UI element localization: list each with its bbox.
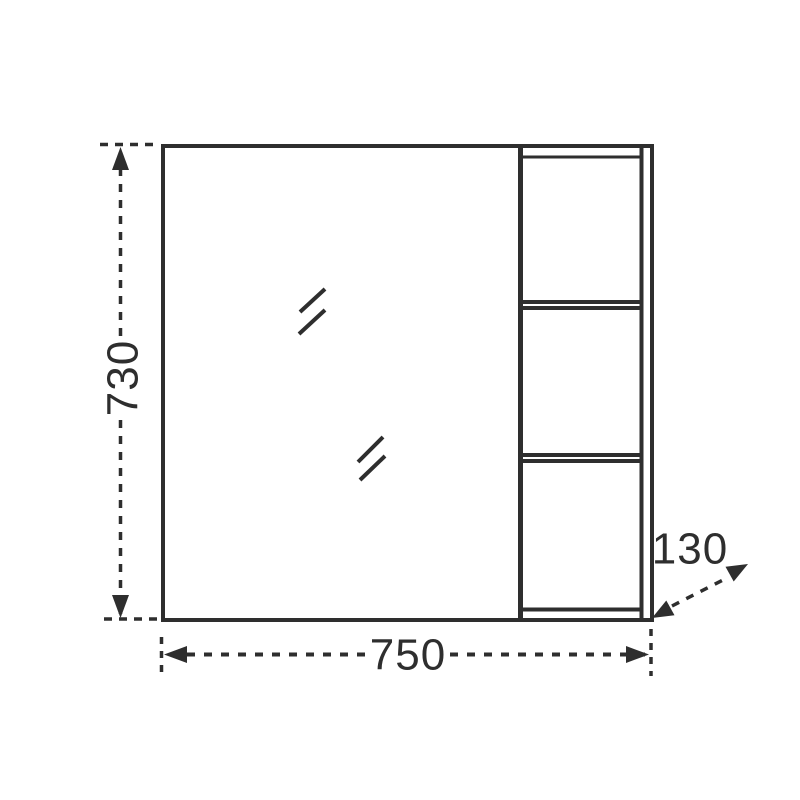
arrow-up-icon bbox=[112, 147, 129, 170]
width-dimension: 750 bbox=[162, 629, 652, 679]
mirror-glass-icon-1 bbox=[299, 289, 325, 334]
width-dimension-label: 750 bbox=[370, 630, 446, 679]
arrow-down-icon bbox=[112, 595, 129, 618]
depth-dimension-label: 130 bbox=[652, 524, 728, 573]
depth-dimension-line bbox=[672, 578, 727, 606]
height-dimension-label: 730 bbox=[98, 340, 147, 416]
arrow-up-right-icon bbox=[726, 564, 749, 582]
mirror-glass-icon-2 bbox=[358, 437, 385, 480]
arrow-down-left-icon bbox=[652, 601, 675, 619]
height-dimension: 730 bbox=[98, 145, 159, 620]
diagram-canvas: 730 750 130 bbox=[0, 0, 800, 800]
cabinet-body bbox=[163, 146, 652, 620]
cabinet-outline bbox=[163, 146, 652, 620]
cabinet-technical-drawing: 730 750 130 bbox=[0, 0, 800, 800]
arrow-left-icon bbox=[164, 646, 187, 663]
depth-dimension: 130 bbox=[652, 524, 748, 618]
shelf-divider-1 bbox=[521, 302, 641, 308]
arrow-right-icon bbox=[626, 646, 649, 663]
shelf-divider-2 bbox=[521, 455, 641, 461]
